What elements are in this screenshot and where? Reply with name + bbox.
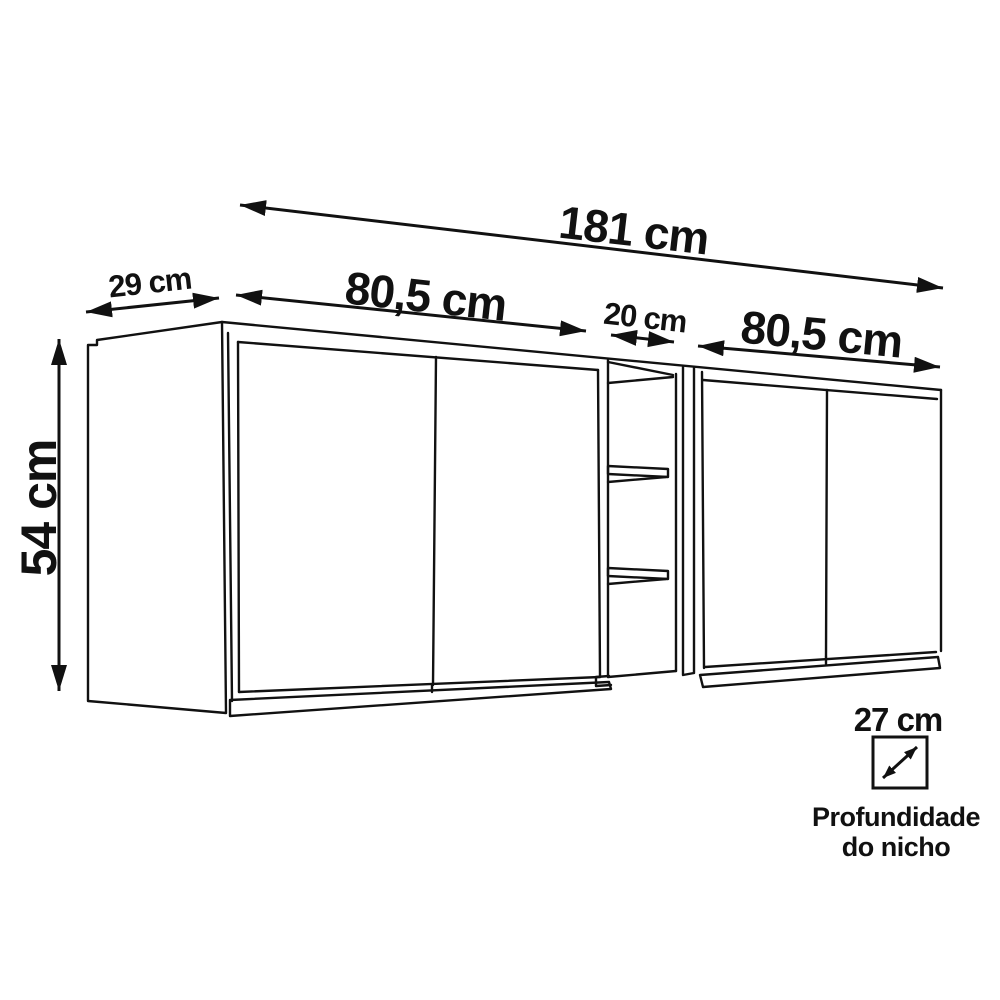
- dimension-label-side-depth: 29 cm: [107, 261, 193, 305]
- left-door-left-edge: [238, 342, 239, 692]
- left-side-panel: [88, 322, 226, 713]
- niche-depth-legend: 27 cm Profundidade do nicho: [812, 701, 980, 862]
- dimension-diagram-canvas: 181 cm 29 cm 80,5 cm 20 cm 80,5 cm 54 cm…: [0, 0, 1000, 1000]
- niche-bottom-edge: [608, 671, 676, 677]
- cabinet-outline: [88, 322, 941, 716]
- niche-depth-value: 27 cm: [854, 701, 943, 738]
- dimension-arrows: 181 cm 29 cm 80,5 cm 20 cm 80,5 cm 54 cm: [11, 196, 943, 691]
- niche-right-divider-panels: [683, 367, 694, 675]
- dimension-label-height: 54 cm: [11, 440, 67, 577]
- niche-depth-caption-line2: do nicho: [842, 832, 950, 862]
- dimension-label-total-width: 181 cm: [556, 196, 711, 265]
- right-doors-divider: [826, 390, 827, 657]
- dimension-line-side-depth: [86, 298, 219, 312]
- dimension-label-right-section: 80,5 cm: [739, 301, 905, 368]
- left-doors-top-edge: [238, 342, 598, 370]
- niche-shelf-upper: [608, 466, 668, 482]
- left-doors-divider: [433, 357, 436, 685]
- cabinet-dimension-diagram: 181 cm 29 cm 80,5 cm 20 cm 80,5 cm 54 cm…: [0, 0, 1000, 1000]
- left-bottom-lip: [230, 682, 611, 716]
- niche-depth-diagonal-arrow: [883, 747, 917, 778]
- dimension-label-left-section: 80,5 cm: [342, 261, 509, 330]
- right-bottom-lip: [700, 657, 940, 687]
- right-door-left-edge: [702, 372, 704, 668]
- niche-depth-caption-line1: Profundidade: [812, 802, 980, 832]
- right-doors-top-edge: [703, 380, 937, 399]
- left-front-inner-edge: [228, 333, 232, 701]
- niche-top-wedge: [608, 362, 673, 383]
- dimension-label-niche-width: 20 cm: [602, 296, 688, 340]
- left-door-right-edge: [598, 370, 600, 677]
- niche-shelf-lower: [608, 568, 668, 584]
